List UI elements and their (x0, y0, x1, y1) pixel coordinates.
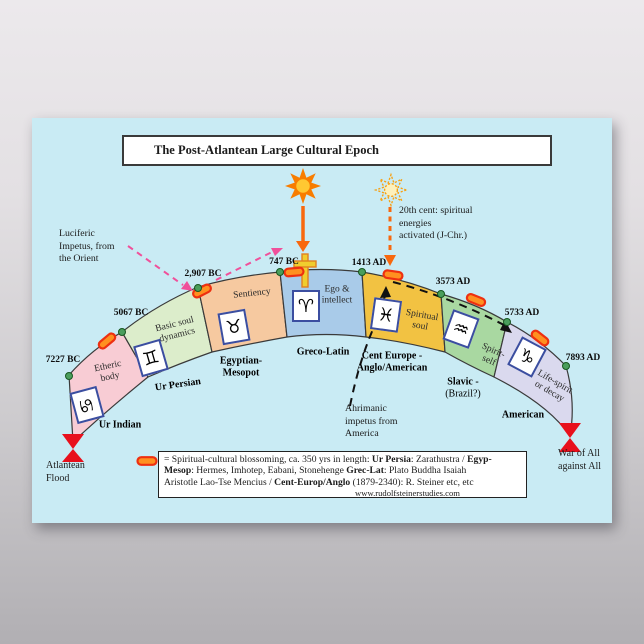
luciferic-arrowhead-1-icon (181, 281, 193, 291)
epoch-name-cent-europe: Cent Europe - Anglo/American (357, 351, 428, 374)
legend-line-1: = Spiritual-cultural blossoming, ca. 350… (164, 454, 521, 465)
zodiac-box-taurus: ♉ (217, 309, 250, 345)
luciferic-arrowhead-2-icon (271, 248, 283, 256)
capsule-greco-latin (284, 267, 304, 276)
date-label-5067bc: 5067 BC (114, 308, 149, 318)
date-label-5733ad: 5733 AD (505, 308, 540, 318)
gemini-icon: ♊ (140, 346, 161, 371)
aries-icon: ♈ (298, 296, 314, 317)
zodiac-box-pisces: ♓ (370, 297, 402, 333)
date-label-2907bc: 2,907 BC (185, 269, 222, 279)
epoch-name-ur-indian: Ur Indian (99, 419, 141, 431)
date-label-1413ad: 1413 AD (352, 258, 387, 268)
date-label-7893ad: 7893 AD (566, 353, 601, 363)
website-url: www.rudolfsteinerstudies.com (164, 488, 521, 499)
legend-line-3: Aristotle Lao-Tse Mencius / Cent-Europ/A… (164, 477, 521, 488)
page-title: The Post-Atlantean Large Cultural Epoch (122, 135, 552, 166)
date-label-3573ad: 3573 AD (436, 277, 471, 287)
aquarius-icon: ♒ (450, 316, 472, 341)
epoch-name-egyptian: Egyptian- Mesopot (220, 356, 262, 379)
20th-century-annotation: 20th cent: spiritual energies activated … (399, 205, 472, 243)
dot-7893ad (563, 363, 570, 370)
capricorn-icon: ♑ (515, 344, 539, 370)
pisces-icon: ♓ (377, 303, 396, 326)
date-label-747bc: 747 BC (269, 257, 299, 267)
luciferic-annotation: Luciferic Impetus, from the Orient (59, 228, 115, 266)
dot-5067bc (119, 329, 126, 336)
luciferic-arrow-1 (128, 246, 183, 285)
ahrimanic-annotation: Ahrimanic impetus from America (345, 403, 398, 441)
dot-2907bc (195, 285, 202, 292)
sun-dashed-icon (376, 175, 407, 206)
flood-bowtie-icon (62, 434, 84, 462)
date-label-7227bc: 7227 BC (46, 355, 81, 365)
faculty-ego-intellect: Ego & intellect (322, 285, 353, 306)
capsule-legend-icon (138, 457, 157, 465)
sun-arrowhead-icon (296, 241, 310, 252)
dot-747bc (277, 269, 284, 276)
dot-1413ad (359, 269, 366, 276)
dot-5733ad (504, 319, 511, 326)
epoch-name-american: American (502, 409, 544, 421)
taurus-icon: ♉ (224, 315, 244, 338)
capsule-cent-europe (383, 270, 403, 280)
dot-7227bc (66, 373, 73, 380)
sun-icon (285, 168, 321, 204)
epoch-name-greco-latin: Greco-Latin (297, 346, 350, 358)
zodiac-box-aries: ♈ (292, 290, 320, 322)
cancer-icon: ♋ (75, 394, 99, 415)
epoch-arch-diagram (0, 0, 644, 644)
atlantean-flood-label: Atlantean Flood (46, 460, 85, 485)
poster-scene: The Post-Atlantean Large Cultural Epoch … (0, 0, 644, 644)
epoch-name-slavic: Slavic - (Brazil?) (445, 377, 481, 400)
legend-box: = Spiritual-cultural blossoming, ca. 350… (158, 451, 527, 498)
dot-3573ad (438, 291, 445, 298)
legend-line-2: Mesop: Hermes, Imhotep, Eabani, Stonehen… (164, 465, 521, 476)
war-of-all-label: War of All against All (558, 448, 601, 473)
